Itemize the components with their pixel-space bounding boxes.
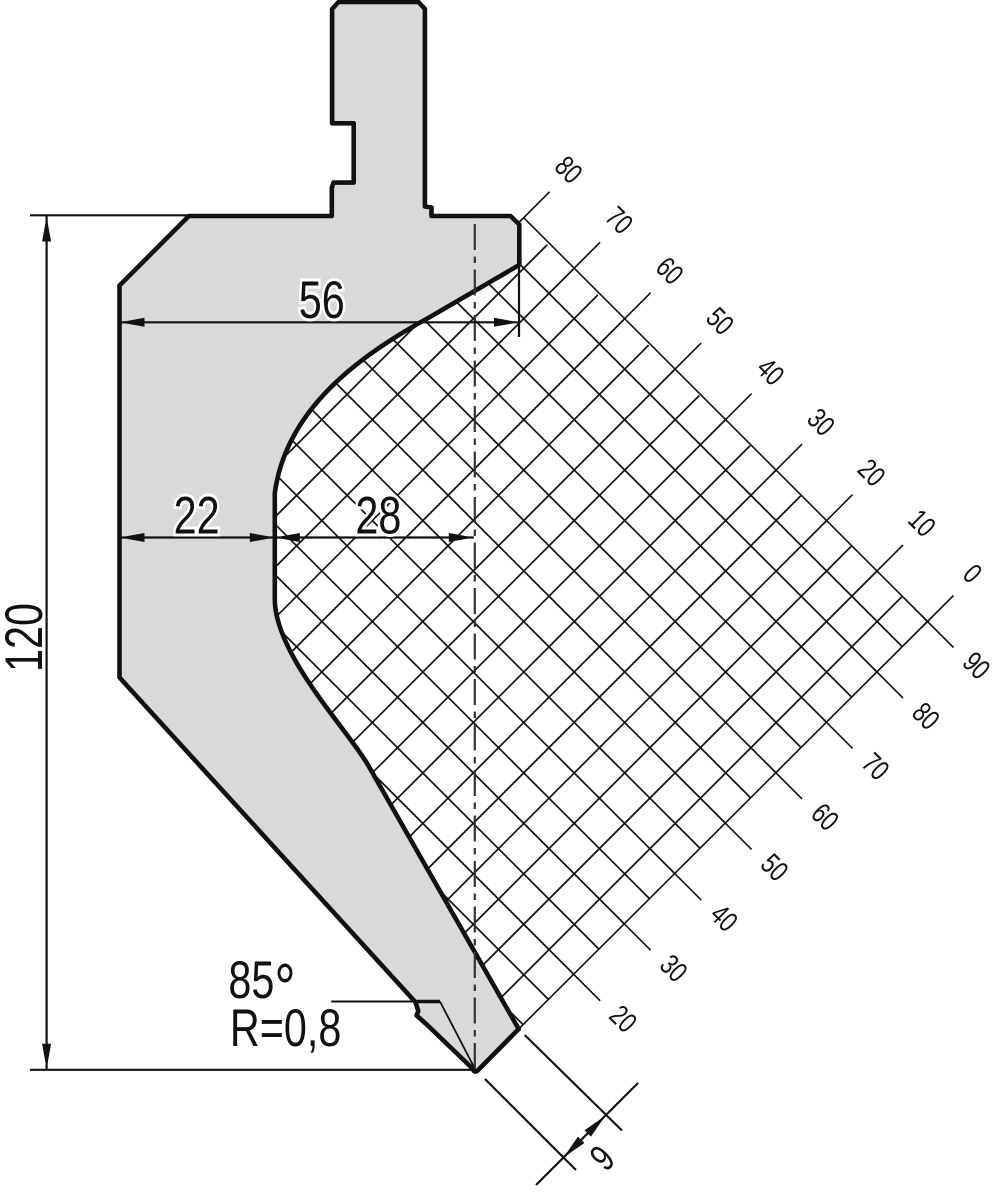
svg-text:120: 120 [0, 603, 54, 672]
svg-text:22: 22 [174, 487, 220, 546]
svg-text:28: 28 [355, 487, 401, 546]
svg-text:R=0,8: R=0,8 [230, 999, 341, 1058]
svg-text:56: 56 [299, 271, 345, 330]
